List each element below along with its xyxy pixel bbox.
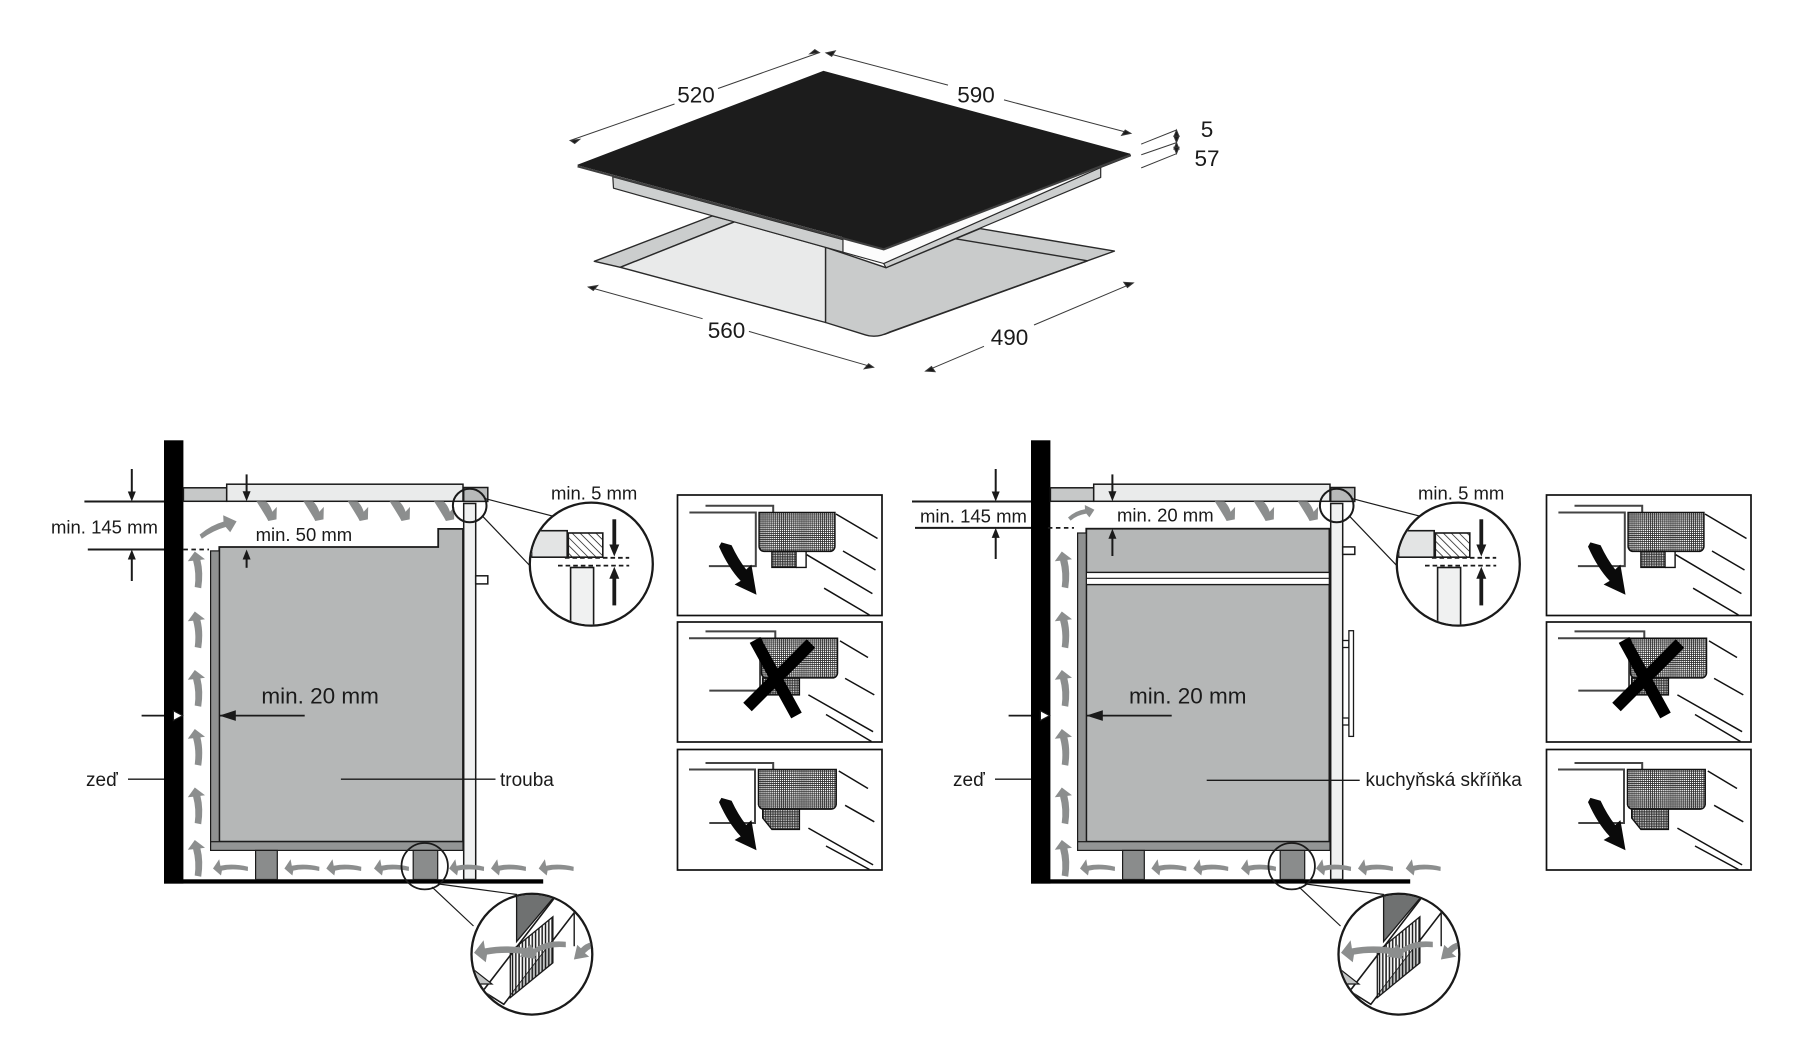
svg-text:min. 20 mm: min. 20 mm	[1117, 504, 1214, 525]
svg-text:min. 5 mm: min. 5 mm	[551, 483, 637, 504]
svg-text:560: 560	[708, 318, 746, 343]
svg-text:490: 490	[991, 325, 1029, 350]
svg-text:min. 145 mm: min. 145 mm	[920, 506, 1027, 527]
svg-text:min. 50 mm: min. 50 mm	[256, 524, 353, 545]
svg-text:min. 5 mm: min. 5 mm	[1418, 483, 1504, 504]
svg-text:min. 145 mm: min. 145 mm	[51, 517, 158, 538]
svg-text:zeď: zeď	[953, 770, 985, 791]
svg-text:590: 590	[957, 83, 995, 108]
svg-text:5: 5	[1201, 117, 1214, 142]
svg-text:520: 520	[677, 83, 715, 108]
svg-text:zeď: zeď	[86, 770, 118, 791]
svg-text:min. 20 mm: min. 20 mm	[1129, 684, 1247, 709]
svg-text:min. 20 mm: min. 20 mm	[261, 684, 379, 709]
svg-text:kuchyňská skříňka: kuchyňská skříňka	[1366, 770, 1523, 791]
svg-text:57: 57	[1194, 146, 1219, 171]
svg-text:trouba: trouba	[500, 770, 554, 791]
